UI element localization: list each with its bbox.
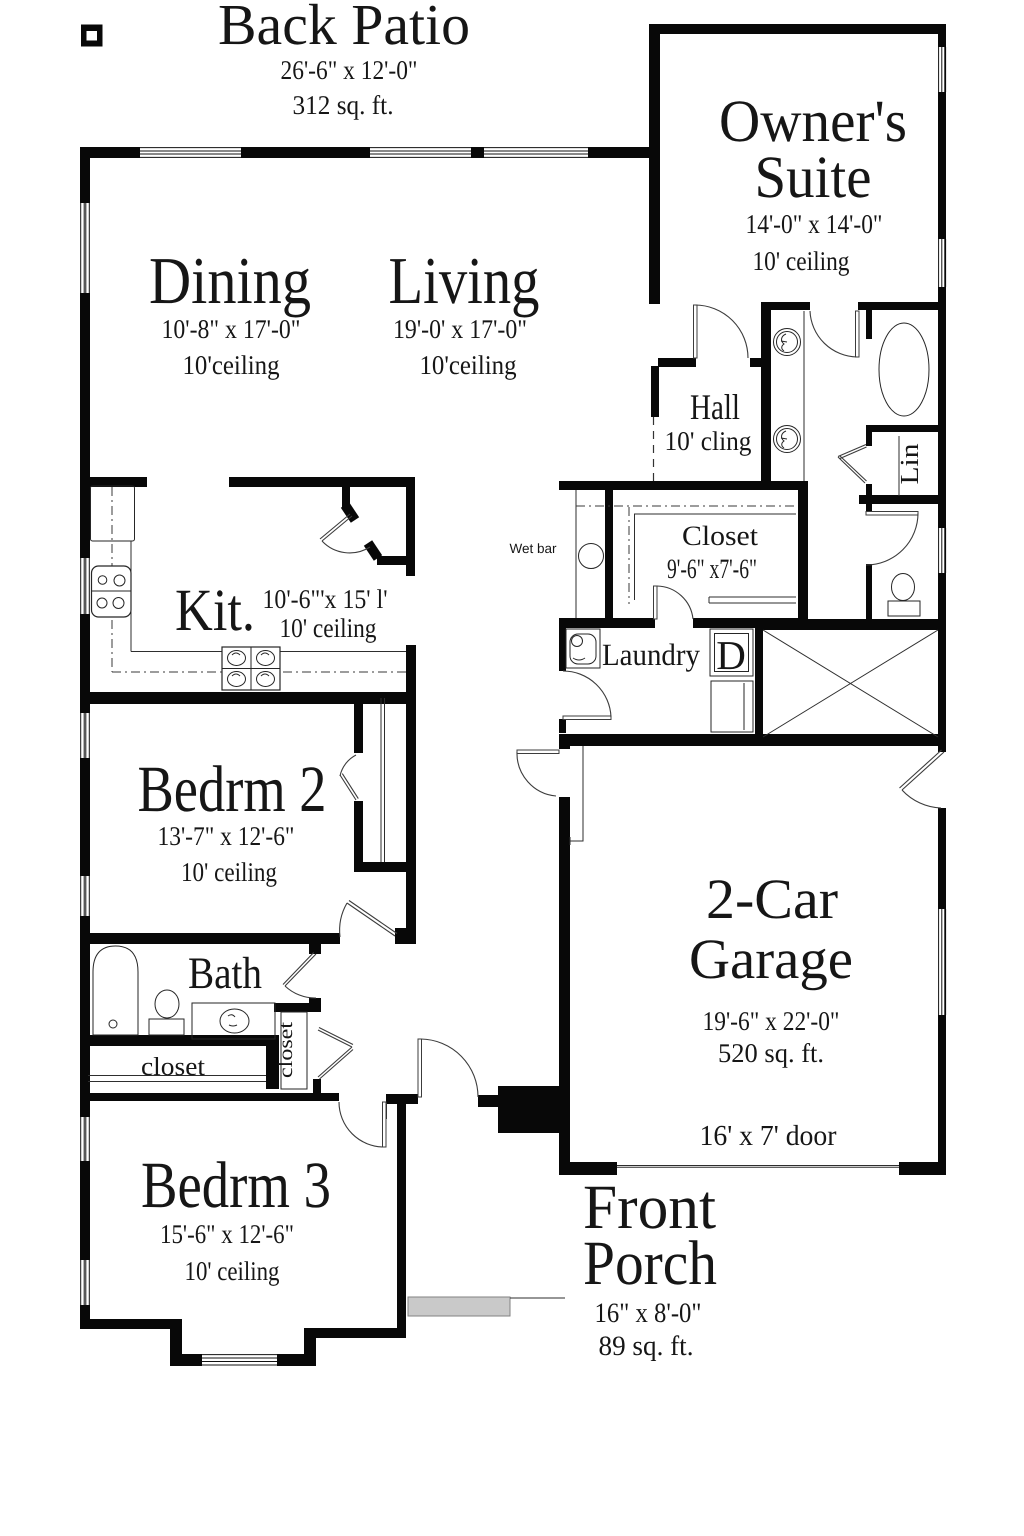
svg-text:closet: closet	[275, 1021, 297, 1078]
svg-text:10'ceiling: 10'ceiling	[420, 350, 517, 380]
svg-text:2-Car: 2-Car	[706, 868, 838, 931]
svg-text:520 sq. ft.: 520 sq. ft.	[718, 1038, 824, 1068]
svg-text:Wet bar: Wet bar	[510, 541, 557, 556]
svg-text:9'-6" x7'-6": 9'-6" x7'-6"	[667, 554, 757, 585]
svg-text:10'ceiling: 10'ceiling	[183, 350, 280, 380]
svg-text:Hall: Hall	[690, 387, 740, 427]
svg-text:Bedrm 3: Bedrm 3	[141, 1149, 331, 1222]
svg-text:26'-6" x 12'-0": 26'-6" x 12'-0"	[281, 55, 418, 85]
svg-text:Porch: Porch	[583, 1228, 717, 1298]
svg-text:Kit.: Kit.	[175, 577, 255, 643]
svg-text:Living: Living	[389, 244, 540, 318]
svg-text:Garage: Garage	[689, 928, 853, 991]
svg-text:16" x 8'-0": 16" x 8'-0"	[595, 1298, 702, 1329]
svg-text:10' ceiling: 10' ceiling	[181, 857, 277, 887]
svg-text:10'-6"'x 15' l': 10'-6"'x 15' l'	[263, 584, 388, 614]
svg-text:13'-7" x 12'-6": 13'-7" x 12'-6"	[158, 821, 295, 851]
svg-text:Suite: Suite	[755, 144, 872, 210]
svg-text:Back Patio: Back Patio	[218, 0, 470, 57]
svg-text:10' cling: 10' cling	[665, 426, 752, 456]
svg-text:89 sq. ft.: 89 sq. ft.	[599, 1331, 694, 1362]
svg-text:Closet: Closet	[682, 521, 758, 552]
svg-text:D: D	[716, 632, 746, 678]
svg-text:Bath: Bath	[188, 948, 262, 998]
svg-text:Lin: Lin	[895, 444, 924, 485]
svg-text:14'-0" x 14'-0": 14'-0" x 14'-0"	[746, 209, 883, 239]
svg-text:16' x 7' door: 16' x 7' door	[700, 1120, 837, 1152]
svg-text:10' ceiling: 10' ceiling	[280, 613, 377, 643]
svg-text:19'-6" x 22'-0": 19'-6" x 22'-0"	[703, 1006, 840, 1036]
svg-text:Dining: Dining	[149, 244, 311, 318]
svg-text:312 sq. ft.: 312 sq. ft.	[293, 90, 394, 120]
svg-text:10' ceiling: 10' ceiling	[185, 1256, 280, 1286]
svg-text:closet: closet	[141, 1052, 206, 1081]
svg-text:10'-8" x 17'-0": 10'-8" x 17'-0"	[162, 314, 301, 344]
svg-text:19'-0' x 17'-0": 19'-0' x 17'-0"	[393, 314, 527, 344]
svg-text:Laundry: Laundry	[602, 637, 700, 672]
svg-text:15'-6" x 12'-6": 15'-6" x 12'-6"	[160, 1219, 294, 1249]
svg-text:10' ceiling: 10' ceiling	[753, 246, 850, 276]
svg-text:Bedrm 2: Bedrm 2	[138, 753, 327, 826]
